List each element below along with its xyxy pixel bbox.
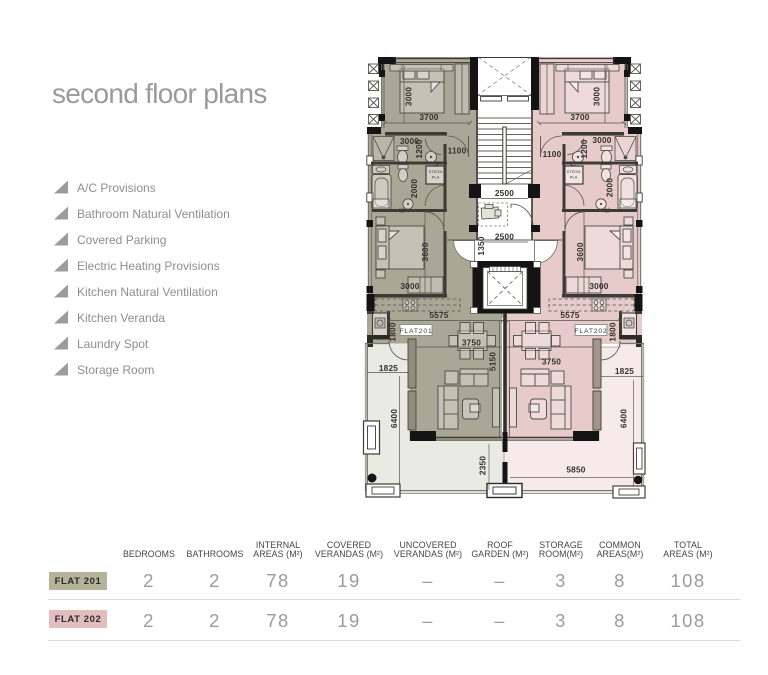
svg-text:STEGN: STEGN [429,169,443,174]
svg-text:STEGN: STEGN [567,169,581,174]
svg-text:2000: 2000 [605,178,615,197]
svg-text:5575: 5575 [429,310,448,320]
svg-text:3750: 3750 [462,338,481,348]
svg-text:1200: 1200 [414,139,424,158]
svg-text:1800: 1800 [608,322,618,341]
svg-text:FLAT201: FLAT201 [399,328,432,335]
svg-text:1100: 1100 [448,146,467,156]
svg-text:6400: 6400 [619,409,629,428]
svg-text:2350: 2350 [478,456,488,475]
svg-text:2500: 2500 [495,232,514,242]
svg-text:1100: 1100 [543,149,562,159]
svg-text:3600: 3600 [575,242,585,261]
svg-text:5850: 5850 [566,465,585,475]
svg-text:1800: 1800 [388,322,398,341]
svg-text:3000: 3000 [589,281,608,291]
svg-text:3700: 3700 [419,112,438,122]
svg-text:2000: 2000 [409,179,419,198]
svg-text:3700: 3700 [570,112,589,122]
svg-text:PLA: PLA [432,175,440,180]
svg-text:1350: 1350 [476,236,486,255]
svg-text:5150: 5150 [488,352,498,371]
svg-text:3600: 3600 [420,242,430,261]
svg-text:5575: 5575 [560,310,579,320]
svg-text:1825: 1825 [615,366,634,376]
svg-text:PLA: PLA [570,175,578,180]
svg-text:3000: 3000 [400,281,419,291]
svg-text:3750: 3750 [542,357,561,367]
svg-text:1200: 1200 [579,139,589,158]
svg-text:1825: 1825 [379,363,398,373]
svg-text:FLAT202: FLAT202 [574,328,607,335]
svg-text:3000: 3000 [592,87,602,106]
svg-text:3000: 3000 [404,87,414,106]
svg-text:2500: 2500 [495,188,514,198]
svg-text:3000: 3000 [592,135,611,145]
svg-text:6400: 6400 [389,409,399,428]
